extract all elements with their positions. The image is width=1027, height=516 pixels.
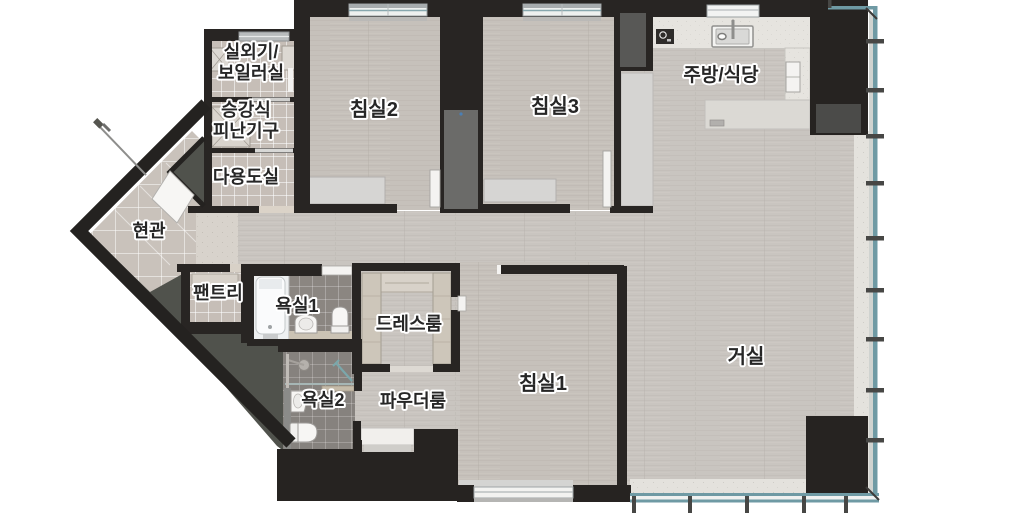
svg-text:파우더룸: 파우더룸 (380, 391, 446, 411)
svg-text:현관: 현관 (132, 221, 166, 241)
svg-text:팬트리: 팬트리 (193, 283, 243, 303)
svg-text:보일러실: 보일러실 (218, 63, 284, 83)
svg-text:욕실2: 욕실2 (301, 390, 344, 410)
svg-text:피난기구: 피난기구 (213, 121, 279, 141)
svg-text:드레스룸: 드레스룸 (376, 314, 442, 334)
svg-text:주방/식당: 주방/식당 (683, 64, 759, 86)
svg-text:욕실1: 욕실1 (275, 296, 318, 316)
svg-text:다용도실: 다용도실 (213, 167, 279, 187)
svg-text:승강식: 승강식 (221, 100, 271, 120)
svg-text:침실1: 침실1 (519, 372, 567, 395)
svg-text:거실: 거실 (728, 345, 765, 368)
svg-text:실외기/: 실외기/ (224, 42, 279, 62)
svg-text:침실2: 침실2 (350, 98, 398, 121)
svg-text:침실3: 침실3 (531, 95, 579, 118)
